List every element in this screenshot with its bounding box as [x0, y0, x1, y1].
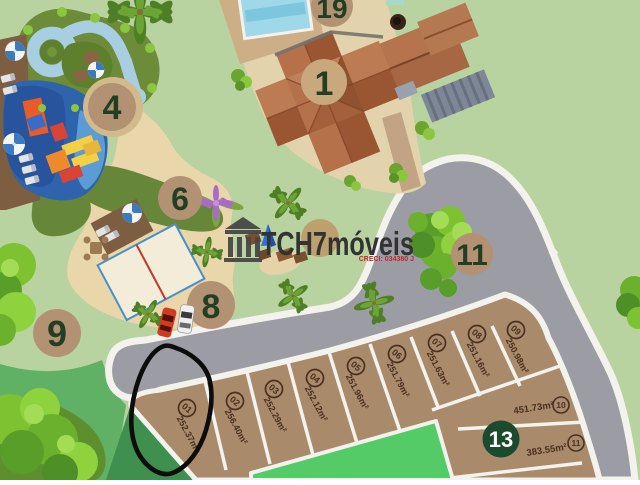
svg-text:4: 4 — [103, 89, 122, 127]
svg-text:11: 11 — [572, 438, 581, 448]
svg-text:10: 10 — [556, 400, 566, 410]
svg-text:11: 11 — [456, 239, 488, 272]
svg-text:1: 1 — [315, 65, 334, 103]
svg-text:19: 19 — [316, 0, 347, 24]
svg-text:8: 8 — [202, 288, 221, 326]
svg-text:6: 6 — [171, 181, 189, 217]
svg-text:CRECI: 034380 J: CRECI: 034380 J — [359, 256, 414, 263]
svg-text:13: 13 — [489, 427, 513, 452]
svg-text:9: 9 — [47, 313, 67, 354]
